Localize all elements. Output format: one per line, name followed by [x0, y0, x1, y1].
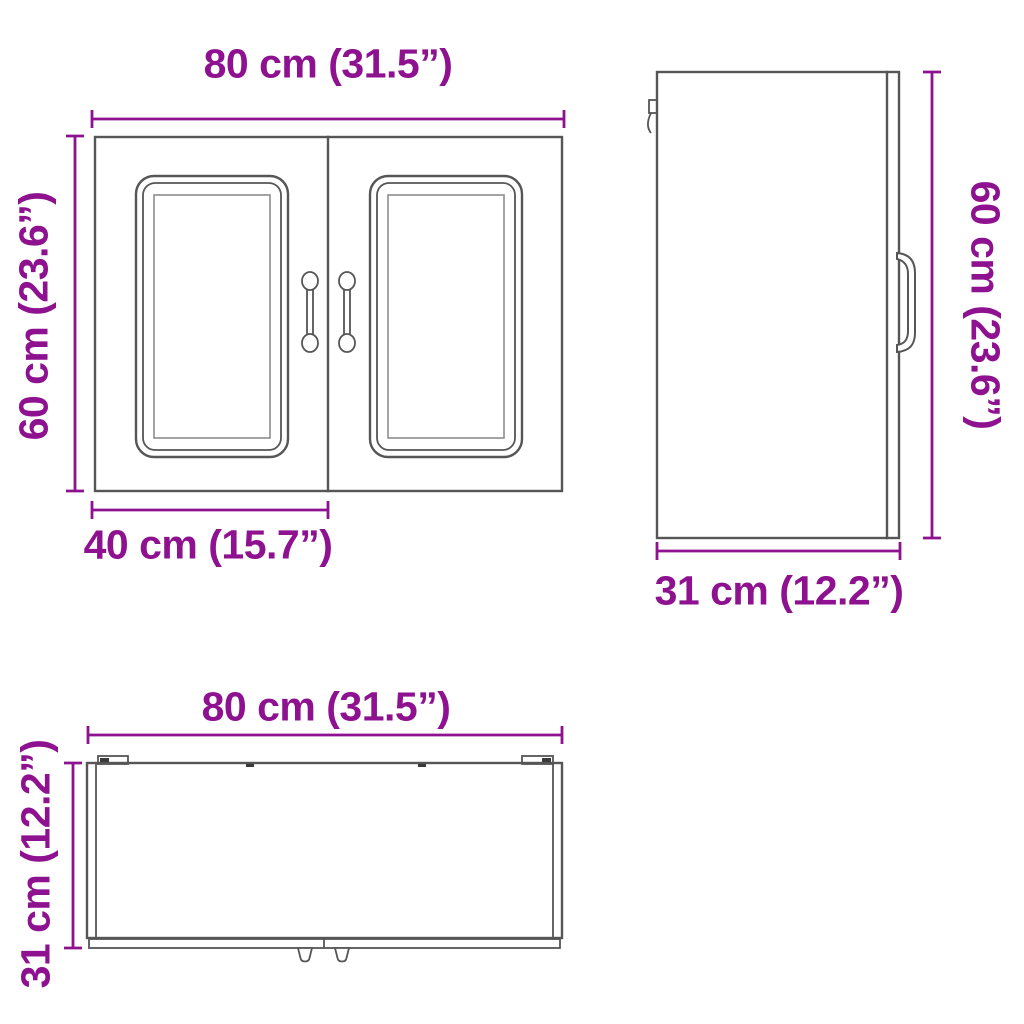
- top-door-front-strip: [89, 939, 560, 948]
- side-depth-label: 31 cm (12.2”): [655, 568, 904, 615]
- top-cabinet-body: [87, 763, 562, 938]
- front-view-drawing: [66, 110, 564, 519]
- top-back-fitting-mark: [418, 764, 426, 767]
- side-hinge-detail: [648, 100, 657, 133]
- top-back-fitting-mark: [246, 764, 254, 767]
- top-right-handle-knob: [335, 948, 349, 962]
- top-view-drawing: [64, 726, 562, 962]
- side-height-label: 60 cm (23.6”): [962, 181, 1009, 430]
- top-depth-dimension-line: [64, 763, 82, 948]
- cabinet-line-art: [0, 0, 1024, 1024]
- front-width-label: 80 cm (31.5”): [204, 41, 453, 88]
- top-depth-label: 31 cm (12.2”): [13, 740, 60, 989]
- front-width-dimension-line: [92, 110, 564, 128]
- dimension-diagram: 80 cm (31.5”) 60 cm (23.6”) 40 cm (15.7”…: [0, 0, 1024, 1024]
- side-view-drawing: [648, 72, 941, 560]
- side-height-dimension-line: [923, 72, 941, 538]
- front-height-label: 60 cm (23.6”): [11, 192, 58, 441]
- front-door-width-dimension-line: [92, 501, 328, 519]
- side-cabinet-body: [657, 72, 899, 538]
- front-height-dimension-line: [66, 136, 84, 491]
- side-depth-dimension-line: [657, 542, 900, 560]
- front-door-width-label: 40 cm (15.7”): [84, 522, 333, 569]
- top-width-label: 80 cm (31.5”): [202, 684, 451, 731]
- top-left-handle-knob: [298, 948, 312, 962]
